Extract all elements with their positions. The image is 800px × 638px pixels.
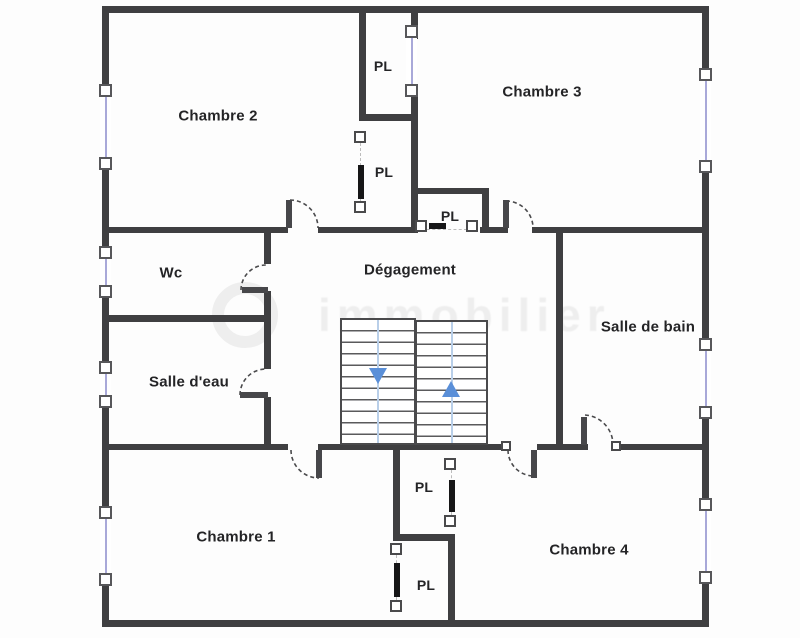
window-end <box>699 160 712 173</box>
window-end <box>405 84 418 97</box>
wall-pl-divider <box>393 534 455 541</box>
window-end <box>699 498 712 511</box>
room-label-wc: Wc <box>160 265 183 282</box>
door-leaf-salle-d-eau <box>240 392 268 398</box>
window-end <box>99 573 112 586</box>
window <box>700 79 711 163</box>
wall-pl-chambre3 <box>411 87 418 233</box>
window <box>100 95 111 160</box>
closet-label-pl-bottom-upper: PL <box>415 479 433 495</box>
wall-corridor-top <box>318 227 412 233</box>
window-end <box>99 506 112 519</box>
door-hinge <box>415 220 427 232</box>
window-end <box>99 246 112 259</box>
room-label-salle-de-bain: Salle de bain <box>601 319 695 336</box>
window-end <box>699 338 712 351</box>
window-end <box>99 361 112 374</box>
room-label-salle-d-eau: Salle d'eau <box>149 374 229 391</box>
closet-door-leaf <box>358 165 364 199</box>
door-hinge <box>611 441 621 451</box>
wall-wc-right <box>264 233 271 264</box>
door-hinge <box>354 201 366 213</box>
wall-wc-right <box>264 397 271 450</box>
wall-salle-de-bain-left <box>556 233 563 450</box>
closet-label-pl-middle: PL <box>375 164 393 180</box>
window-end <box>699 68 712 81</box>
wall-corridor-top <box>102 227 288 233</box>
room-label-chambre-4: Chambre 4 <box>549 542 628 559</box>
door-hinge <box>501 441 511 451</box>
window-end <box>699 406 712 419</box>
door-leaf-chambre2 <box>286 200 292 228</box>
door-leaf-chambre1 <box>316 450 322 478</box>
wall-pl5-right <box>448 540 455 627</box>
wall-pl-hall-right <box>482 188 489 233</box>
wall-pl-bottom <box>359 114 418 121</box>
floor-plan: immobilier <box>0 0 800 638</box>
door-hinge <box>390 543 402 555</box>
window <box>406 36 417 86</box>
wall-outer-top <box>102 6 709 13</box>
closet-door-leaf <box>449 480 455 512</box>
door-leaf-chambre4 <box>531 450 537 478</box>
window <box>100 257 111 288</box>
door-hinge <box>390 600 402 612</box>
door-leaf-chambre3 <box>503 200 509 228</box>
room-label-chambre-3: Chambre 3 <box>502 84 581 101</box>
door-hinge <box>466 220 478 232</box>
door-hinge <box>354 131 366 143</box>
wall-pl4-left <box>393 450 400 540</box>
wall-corridor-bottom <box>612 444 709 450</box>
window-end <box>405 25 418 38</box>
door-leaf-salle-de-bain <box>581 417 587 445</box>
window-end <box>99 285 112 298</box>
wall-outer-bottom <box>102 620 709 627</box>
wall-chambre2-pl <box>359 11 366 118</box>
closet-door-leaf <box>394 563 400 597</box>
wall-wc-bottom <box>102 315 271 322</box>
window-end <box>699 571 712 584</box>
window <box>700 349 711 409</box>
door-hinge <box>444 458 456 470</box>
door-hinge <box>444 515 456 527</box>
window <box>700 509 711 574</box>
closet-label-pl-bottom-lower: PL <box>417 577 435 593</box>
stairs-down-arrow-icon <box>369 368 387 384</box>
closet-label-pl-hall: PL <box>441 208 459 224</box>
wall-wc-right <box>264 291 271 369</box>
door-leaf-wc <box>242 287 268 293</box>
room-label-chambre-2: Chambre 2 <box>178 108 257 125</box>
door-track <box>427 229 467 230</box>
stairs-up-arrow-icon <box>442 381 460 397</box>
window-end <box>99 157 112 170</box>
window-end <box>99 395 112 408</box>
window <box>100 517 111 577</box>
window-end <box>99 84 112 97</box>
room-label-degagement: Dégagement <box>364 262 456 279</box>
room-label-chambre-1: Chambre 1 <box>196 529 275 546</box>
closet-label-pl-top: PL <box>374 58 392 74</box>
wall-pl-hall-top <box>411 188 489 194</box>
wall-corridor-bottom <box>102 444 288 450</box>
